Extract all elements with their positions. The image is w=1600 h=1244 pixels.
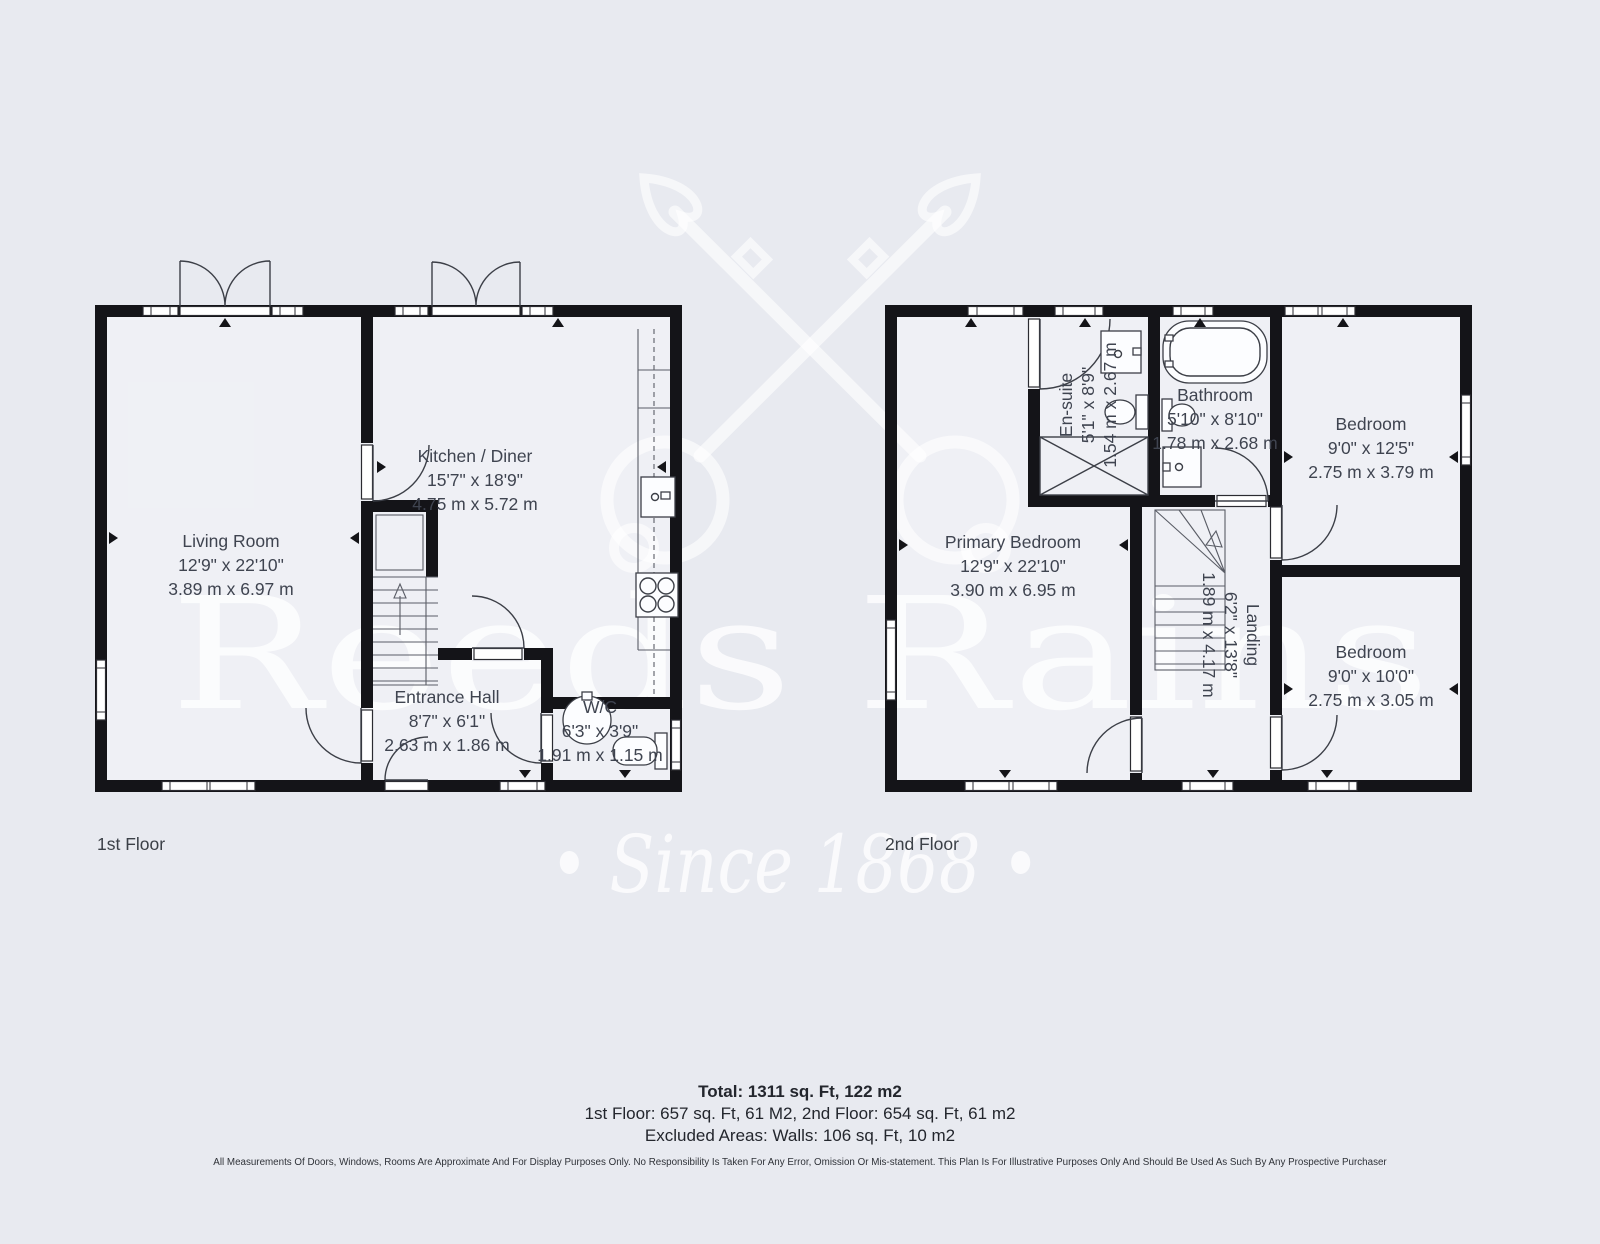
bathroom-metric: 1.78 m x 2.68 m <box>1152 433 1277 453</box>
floorplan-canvas: Reeds Rains • Since 1868 • <box>0 0 1600 1244</box>
summary-excluded: Excluded Areas: Walls: 106 sq. Ft, 10 m2 <box>645 1126 955 1145</box>
primary-bedroom-name: Primary Bedroom <box>945 532 1081 552</box>
area-summary: Total: 1311 sq. Ft, 122 m2 1st Floor: 65… <box>213 1082 1387 1168</box>
kitchen-name: Kitchen / Diner <box>418 446 533 466</box>
living-room-metric: 3.89 m x 6.97 m <box>168 579 293 599</box>
bedroom1-metric: 2.75 m x 3.79 m <box>1308 462 1433 482</box>
bedroom1-imperial: 9'0" x 12'5" <box>1328 438 1414 458</box>
bedroom2-name: Bedroom <box>1335 642 1406 662</box>
wc-imperial: 6'3" x 3'9" <box>562 721 639 741</box>
ensuite-name: En-suite <box>1056 373 1076 437</box>
wc-name: W/C <box>583 697 617 717</box>
floorplan-page: Reeds Rains • Since 1868 • <box>0 0 1600 1244</box>
summary-total: Total: 1311 sq. Ft, 122 m2 <box>698 1082 902 1101</box>
ensuite-metric: 1.54 m x 2.67 m <box>1100 342 1120 467</box>
bath-tub <box>1163 321 1267 383</box>
hall-imperial: 8'7" x 6'1" <box>409 711 486 731</box>
ensuite-toilet-cistern <box>1136 395 1148 429</box>
kitchen-metric: 4.75 m x 5.72 m <box>412 494 537 514</box>
ensuite-imperial: 5'1" x 8'9" <box>1078 367 1098 444</box>
hall-metric: 2.63 m x 1.86 m <box>384 735 509 755</box>
living-room-imperial: 12'9" x 22'10" <box>178 555 284 575</box>
bedroom2-imperial: 9'0" x 10'0" <box>1328 666 1414 686</box>
kitchen-imperial: 15'7" x 18'9" <box>427 470 523 490</box>
wc-metric: 1.91 m x 1.15 m <box>537 745 662 765</box>
bathroom-name: Bathroom <box>1177 385 1253 405</box>
primary-bedroom-imperial: 12'9" x 22'10" <box>960 556 1066 576</box>
summary-floors: 1st Floor: 657 sq. Ft, 61 M2, 2nd Floor:… <box>585 1104 1016 1123</box>
disclaimer-text: All Measurements Of Doors, Windows, Room… <box>213 1157 1387 1168</box>
landing-metric: 1.89 m x 4.17 m <box>1199 572 1219 697</box>
floor1-caption: 1st Floor <box>97 834 165 854</box>
landing-imperial: 6'2" x 13'8" <box>1221 592 1241 678</box>
primary-bedroom-metric: 3.90 m x 6.95 m <box>950 580 1075 600</box>
landing-name: Landing <box>1243 604 1263 666</box>
bathroom-imperial: 5'10" x 8'10" <box>1167 409 1263 429</box>
floor2-caption: 2nd Floor <box>885 834 959 854</box>
hall-name: Entrance Hall <box>394 687 499 707</box>
living-room-name: Living Room <box>182 531 279 551</box>
bedroom1-name: Bedroom <box>1335 414 1406 434</box>
bedroom2-metric: 2.75 m x 3.05 m <box>1308 690 1433 710</box>
watermark-since: • Since 1868 • <box>550 818 1040 911</box>
